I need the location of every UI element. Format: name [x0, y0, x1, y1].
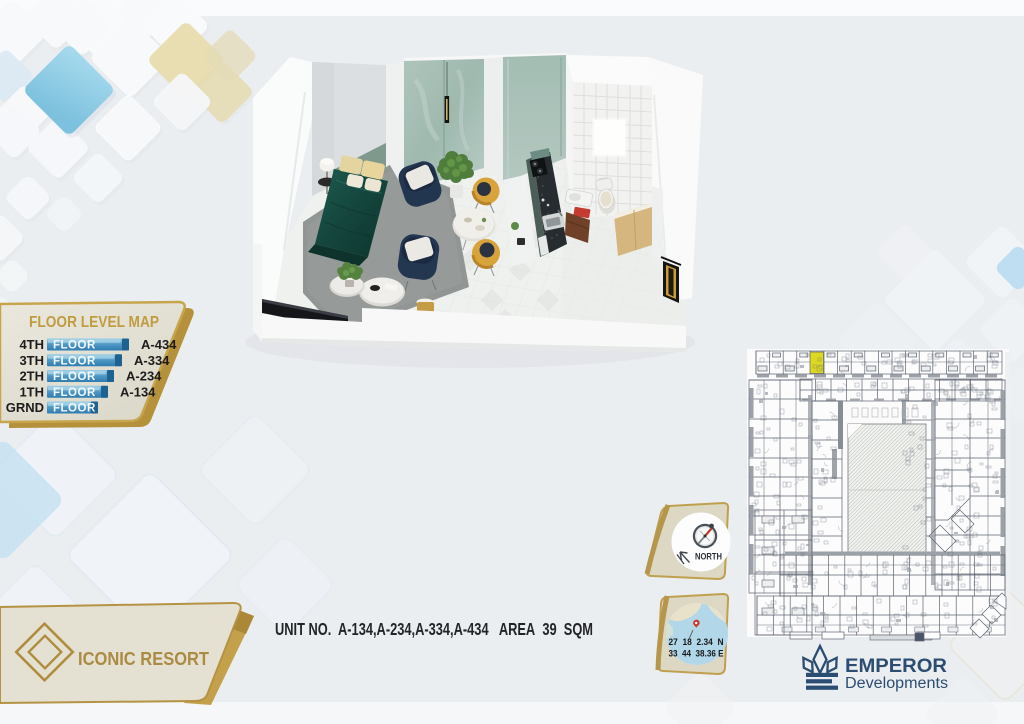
svg-text:A-334: A-334 [134, 353, 170, 368]
svg-text:FLOOR: FLOOR [53, 340, 96, 352]
svg-text:NORTH: NORTH [695, 552, 722, 563]
svg-text:A-434: A-434 [141, 337, 177, 352]
svg-text:GRND: GRND [6, 400, 44, 415]
svg-text:UNIT NO. A-134,A-234,A-334,A-: UNIT NO. A-134,A-234,A-334,A-434 AREA 39… [275, 619, 593, 639]
svg-text:A-234: A-234 [126, 369, 162, 384]
svg-text:ICONIC RESORT: ICONIC RESORT [78, 648, 210, 669]
svg-text:1TH: 1TH [19, 384, 44, 399]
svg-text:2TH: 2TH [19, 369, 44, 384]
svg-text:FLOOR: FLOOR [53, 371, 96, 383]
svg-text:FLOOR: FLOOR [53, 356, 96, 368]
svg-text:A-134: A-134 [120, 384, 156, 399]
svg-text:FLOOR: FLOOR [53, 403, 96, 415]
svg-text:Developments: Developments [845, 675, 948, 692]
svg-text:27 18 2.34 N: 27 18 2.34 N [669, 637, 724, 648]
svg-text:FLOOR: FLOOR [53, 387, 96, 399]
svg-text:3TH: 3TH [19, 353, 44, 368]
svg-text:EMPEROR: EMPEROR [845, 656, 947, 677]
svg-text:4TH: 4TH [19, 337, 44, 352]
svg-text:33 44 38.36 E: 33 44 38.36 E [669, 649, 724, 660]
svg-text:FLOOR LEVEL MAP: FLOOR LEVEL MAP [29, 314, 159, 331]
